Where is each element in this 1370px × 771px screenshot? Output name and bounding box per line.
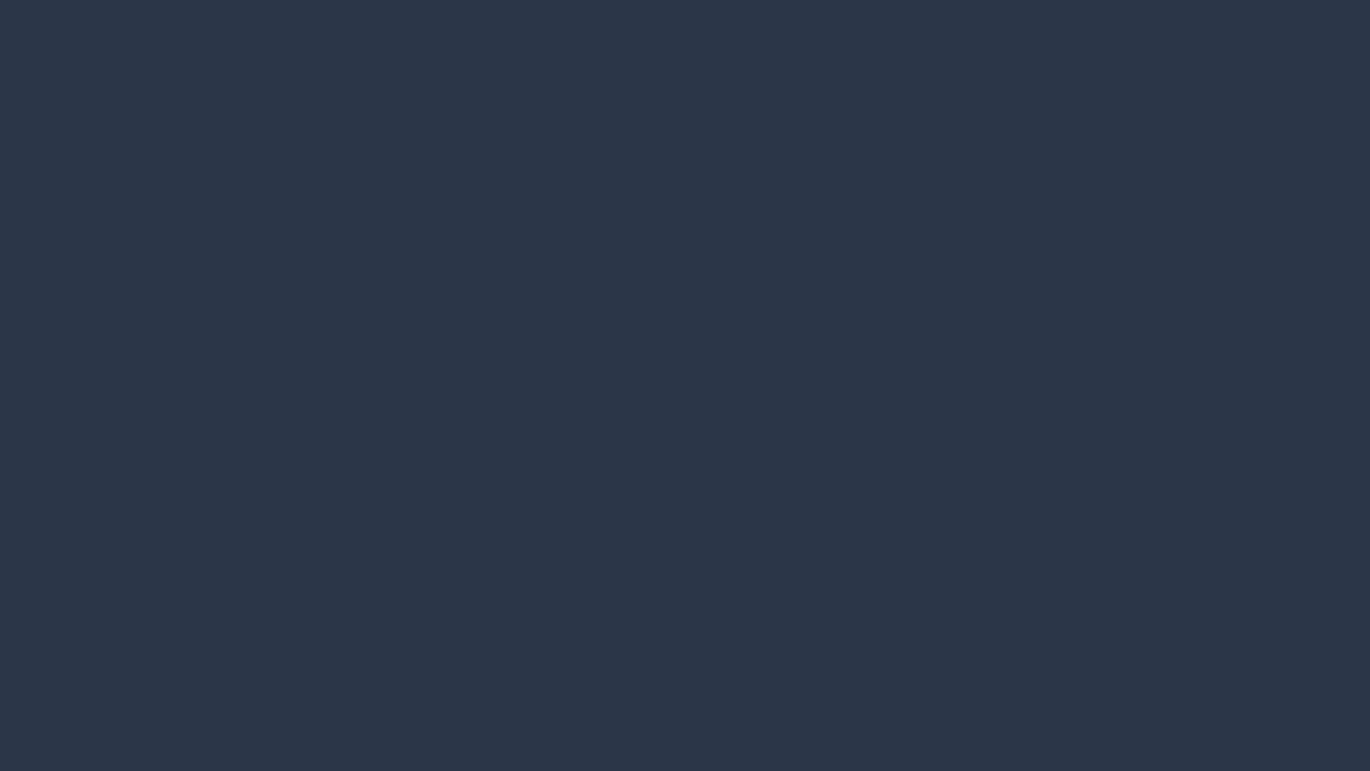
- scene-svg: [0, 0, 1370, 771]
- aerial-render: [0, 0, 1370, 771]
